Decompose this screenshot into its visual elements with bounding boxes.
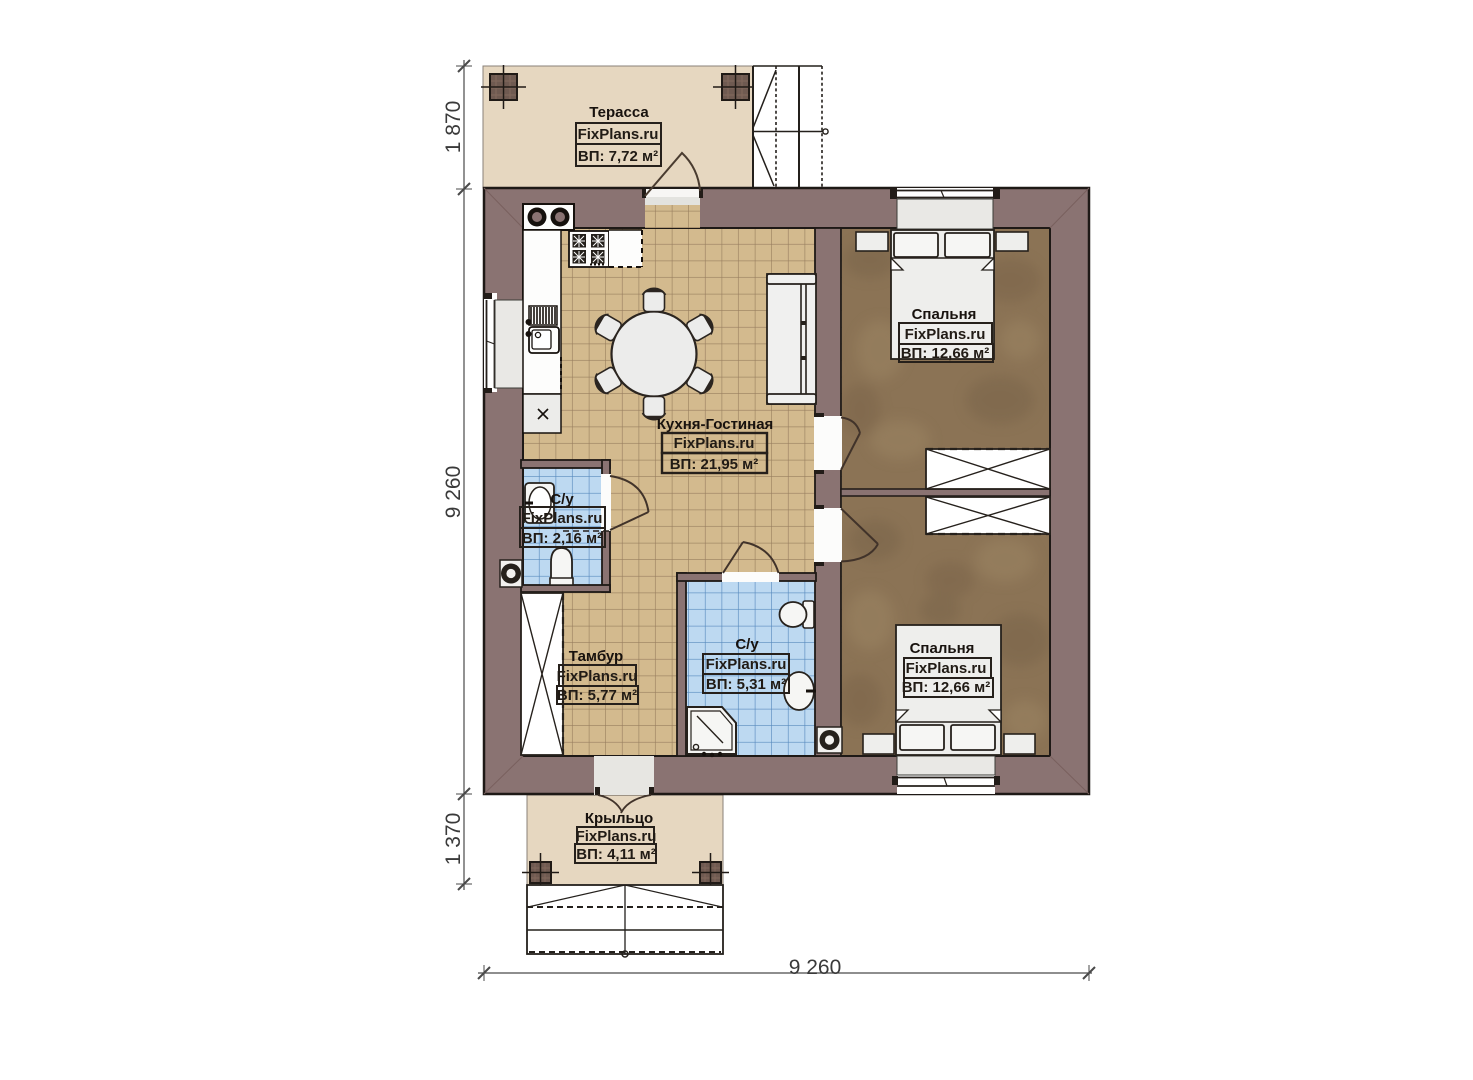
svg-text:Крыльцо: Крыльцо — [585, 810, 653, 827]
svg-text:ВП: 5,77 м²: ВП: 5,77 м² — [557, 687, 637, 704]
svg-text:1 870: 1 870 — [442, 101, 465, 154]
svg-text:FixPlans.ru: FixPlans.ru — [905, 326, 986, 343]
svg-text:ВП: 5,31 м²: ВП: 5,31 м² — [706, 676, 786, 693]
svg-text:Тамбур: Тамбур — [569, 648, 623, 665]
svg-text:FixPlans.ru: FixPlans.ru — [557, 668, 638, 685]
svg-text:ВП: 7,72 м²: ВП: 7,72 м² — [578, 148, 658, 165]
svg-text:1 370: 1 370 — [442, 813, 465, 866]
svg-text:ВП: 12,66 м²: ВП: 12,66 м² — [902, 679, 991, 696]
svg-text:Спальня: Спальня — [912, 306, 977, 323]
svg-text:ВП: 4,11 м²: ВП: 4,11 м² — [576, 846, 655, 863]
svg-text:С/у: С/у — [735, 636, 759, 653]
svg-text:ВП: 21,95 м²: ВП: 21,95 м² — [670, 456, 759, 473]
svg-text:ВП: 2,16 м²: ВП: 2,16 м² — [522, 530, 602, 547]
svg-text:Терасса: Терасса — [589, 104, 649, 121]
svg-text:FixPlans.ru: FixPlans.ru — [706, 656, 787, 673]
svg-text:9 260: 9 260 — [442, 466, 465, 519]
svg-text:ВП: 12,66 м²: ВП: 12,66 м² — [901, 345, 990, 362]
svg-text:С/у: С/у — [550, 491, 574, 508]
svg-text:FixPlans.ru: FixPlans.ru — [906, 660, 987, 677]
svg-text:Спальня: Спальня — [910, 640, 975, 657]
svg-text:FixPlans.ru: FixPlans.ru — [674, 435, 755, 452]
svg-text:FixPlans.ru: FixPlans.ru — [578, 126, 659, 143]
svg-text:9 260: 9 260 — [789, 956, 842, 979]
svg-text:FixPlans.ru: FixPlans.ru — [576, 828, 657, 845]
svg-text:Кухня-Гостиная: Кухня-Гостиная — [657, 416, 774, 433]
svg-text:FixPlans.ru: FixPlans.ru — [522, 510, 603, 527]
